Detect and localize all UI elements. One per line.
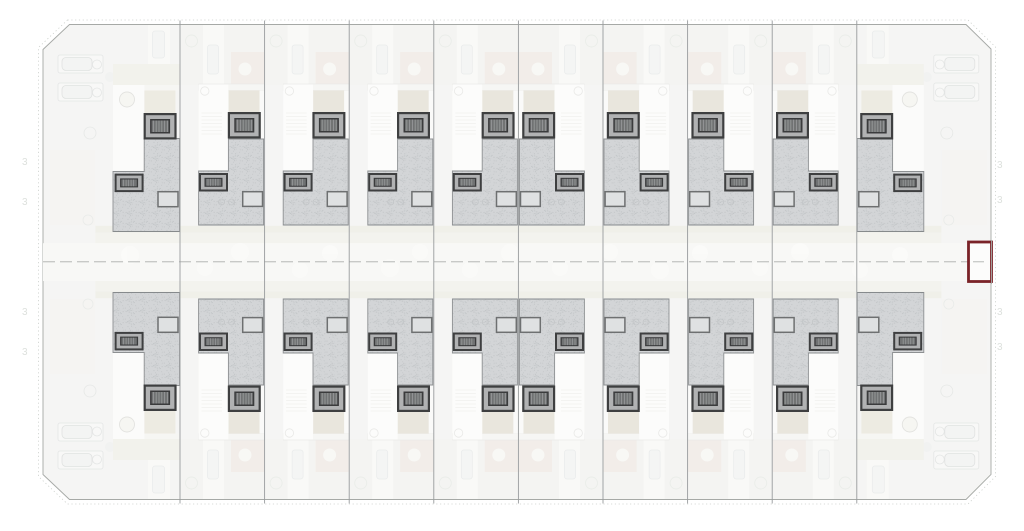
svg-text:3: 3 xyxy=(997,342,1003,353)
svg-text:3: 3 xyxy=(997,307,1003,318)
svg-text:3: 3 xyxy=(22,197,28,208)
svg-text:3: 3 xyxy=(22,347,28,358)
svg-text:3: 3 xyxy=(997,195,1003,206)
svg-text:3: 3 xyxy=(22,157,28,168)
svg-text:3: 3 xyxy=(22,307,28,318)
svg-text:3: 3 xyxy=(997,160,1003,171)
